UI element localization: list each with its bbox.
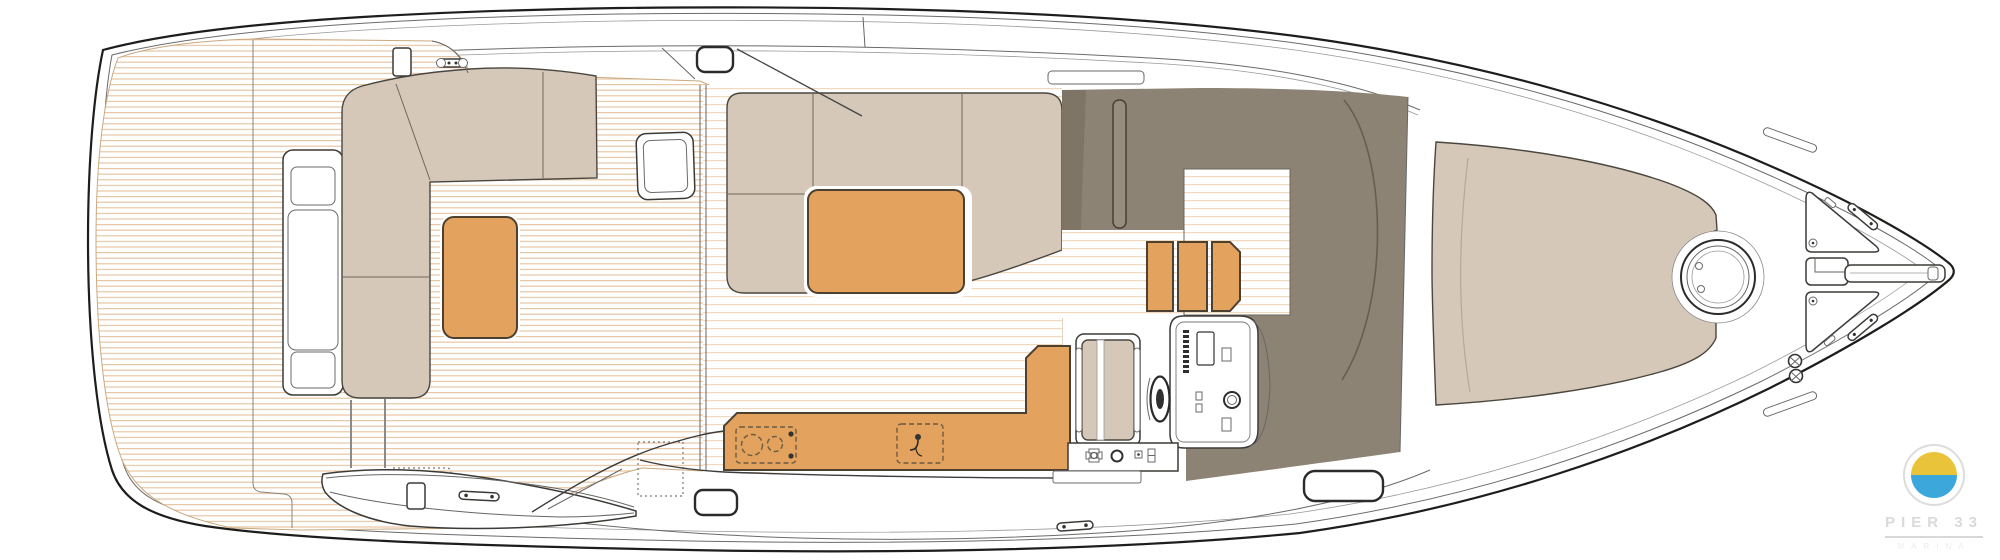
pier33-logo-icon xyxy=(1903,444,1965,506)
logo-subtitle-text: MARINA xyxy=(1878,542,1990,551)
coffee-table xyxy=(808,190,964,293)
gate-latch xyxy=(407,483,425,509)
deck-plan-drawing xyxy=(0,0,2000,560)
deck-plan-page: PIER 33 MARINA xyxy=(0,0,2000,560)
companionway-step-3 xyxy=(1212,242,1240,311)
hatch-hinge-2 xyxy=(1698,286,1705,293)
logo-brand-text: PIER 33 xyxy=(1878,514,1990,531)
port-cleat xyxy=(437,59,468,68)
cockpit-table xyxy=(443,217,517,338)
sun-water-icon xyxy=(1911,452,1957,498)
side-gate xyxy=(393,48,411,76)
throttle-port-icon xyxy=(1112,451,1123,462)
sink-faucet xyxy=(915,434,921,440)
companionway-step-1 xyxy=(1147,242,1173,311)
helm-seat xyxy=(1082,340,1134,440)
stern-cleat xyxy=(459,491,499,501)
deck-window-port xyxy=(697,47,733,72)
helm-knob xyxy=(1224,392,1240,408)
hull-window-aft xyxy=(695,490,737,515)
hatch-hinge-1 xyxy=(1696,263,1703,270)
companionway-step-2 xyxy=(1178,242,1207,311)
logo-divider xyxy=(1885,536,1983,538)
bow-rail-starboard xyxy=(1762,391,1817,418)
instrument-ticks xyxy=(1183,330,1189,373)
switch-panel-2 xyxy=(1222,418,1231,431)
bow-roller xyxy=(1928,267,1938,280)
chartplotter-screen xyxy=(1197,332,1214,365)
side-window-slot xyxy=(1113,100,1126,228)
bow-rail-port xyxy=(1762,127,1817,154)
deck-window-starboard xyxy=(1304,471,1383,501)
cockpit-hatch-seat xyxy=(636,132,695,200)
switch-panel-1 xyxy=(1222,348,1231,361)
pier33-logo: PIER 33 MARINA xyxy=(1878,444,1990,551)
starboard-cleat xyxy=(1057,521,1093,531)
helm-seat-armrest xyxy=(1076,348,1082,432)
hardtop-strip xyxy=(1048,71,1144,84)
